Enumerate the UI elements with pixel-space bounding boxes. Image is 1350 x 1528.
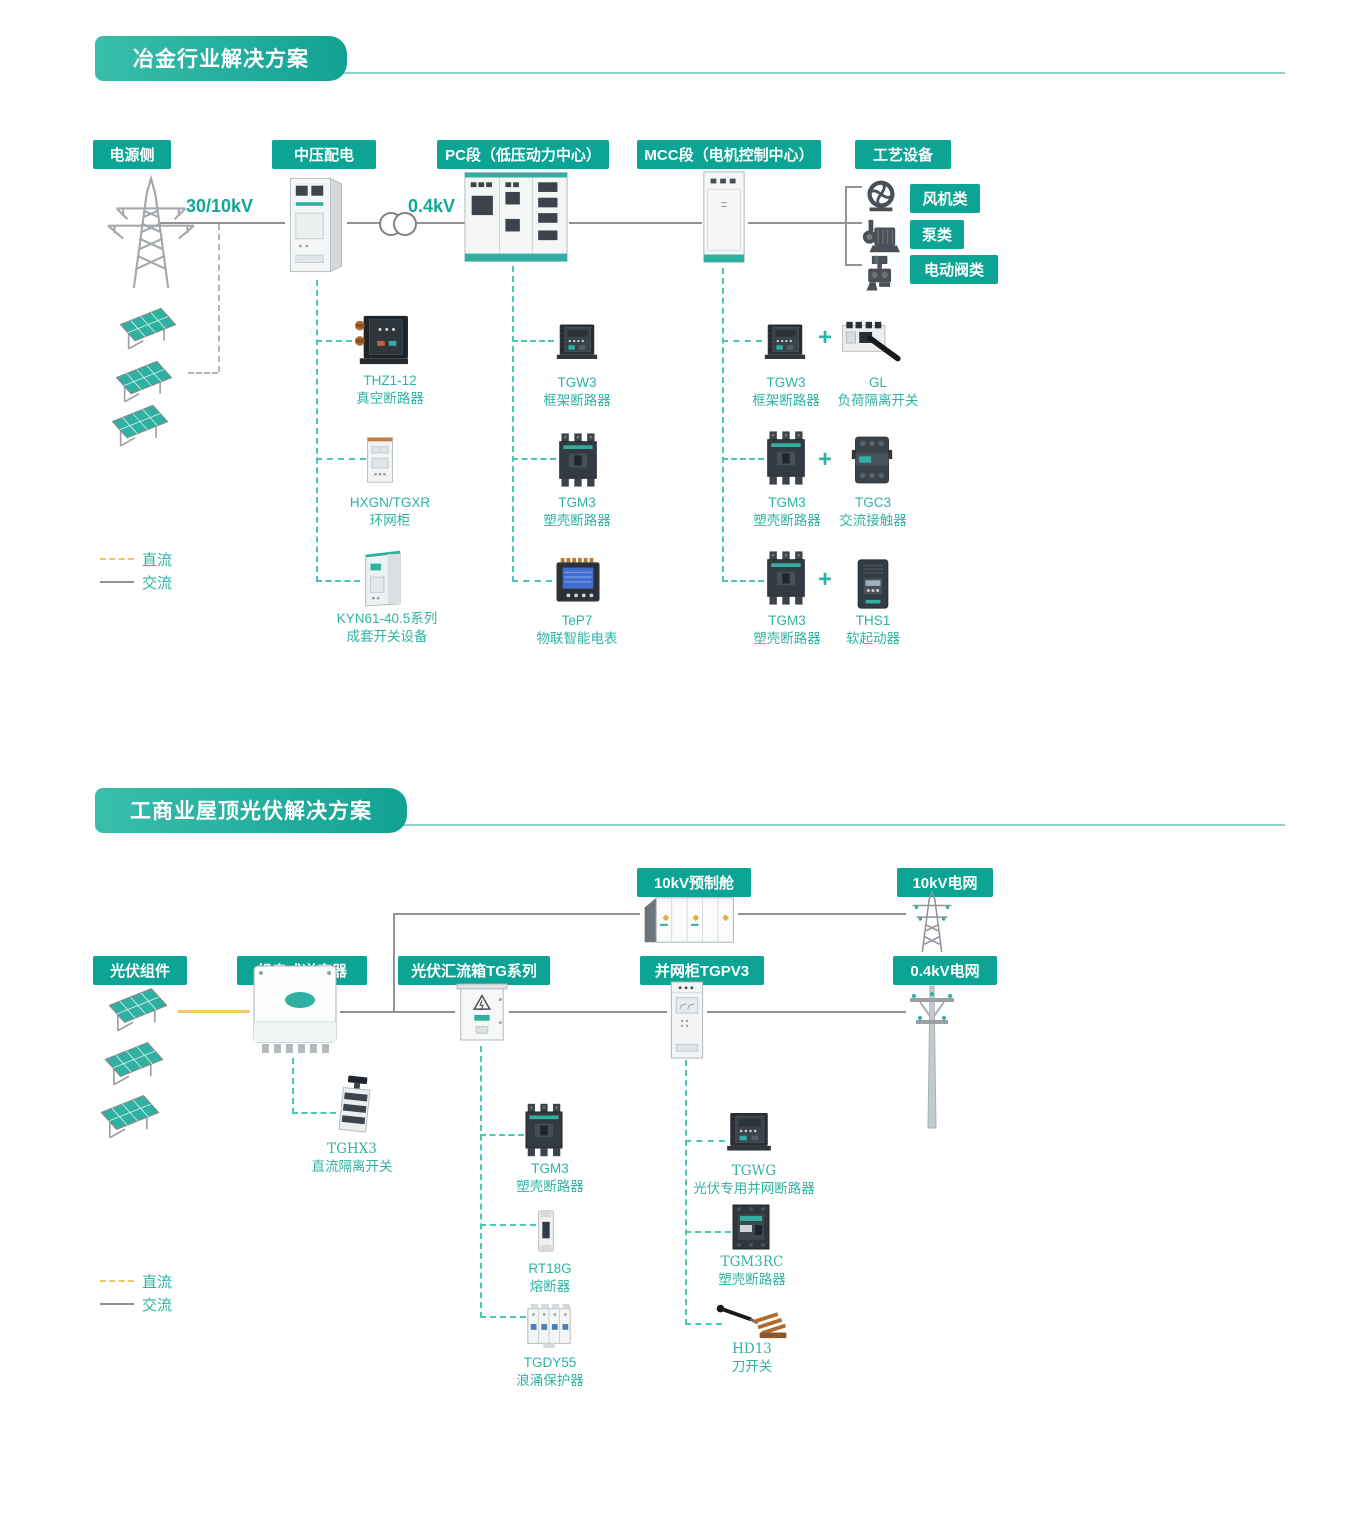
device-name: 塑壳断路器 [507,512,647,530]
device-label-hd13: HD13 刀开关 [677,1340,827,1376]
branch-stub [316,458,366,460]
mv-cabinet-image [283,170,347,280]
branch-stub [685,1140,725,1142]
device-label-gl: GL 负荷隔离开关 [806,374,950,410]
combiner-box-image [455,980,509,1046]
section1-title: 冶金行业解决方案 [95,36,347,81]
header-process-equipment: 工艺设备 [855,140,951,169]
device-label-tgc3: TGC3 交流接触器 [802,494,944,530]
branch-stub [512,580,552,582]
device-name: 浪涌保护器 [475,1372,625,1390]
ac-line [416,222,465,224]
load-tag-valve: 电动阀类 [910,255,998,284]
tgwg-breaker-image [724,1104,774,1158]
ac-line-to-cabin [393,913,640,915]
device-label-thz1-12: THZ1-12 真空断路器 [310,372,470,408]
legend-dc-label: 直流 [142,549,172,570]
legend-dc-label: 直流 [142,1271,172,1292]
tgm3-breaker-image [764,549,808,607]
device-model: TGC3 [802,494,944,512]
plus-sign: + [818,568,832,592]
device-model: HXGN/TGXR [310,494,470,512]
device-label-tgw3: TGW3 框架断路器 [507,374,647,410]
device-label-tghx3: TGHX3 直流隔离开关 [282,1140,422,1176]
load-tag-fan: 风机类 [910,184,980,213]
rt18g-fuse-image [535,1206,557,1256]
inverter-branch-line [292,1058,294,1114]
ac-line-cabin-to-grid [738,913,906,915]
device-model: THS1 [802,612,944,630]
device-name: 熔断器 [475,1278,625,1296]
pump-icon [858,218,902,256]
valve-icon [862,254,900,296]
device-model: TGM3 [507,494,647,512]
device-label-kyn61: KYN61-40.5系列 成套开关设备 [302,610,472,646]
tgw3-breaker-image [554,316,600,366]
device-model: KYN61-40.5系列 [302,610,472,628]
gl-switch-image [840,320,906,366]
device-name: 真空断路器 [310,390,470,408]
device-model: THZ1-12 [310,372,470,390]
device-name: 成套开关设备 [302,628,472,646]
tgm3rc-breaker-image [729,1201,773,1253]
branch-stub [480,1224,536,1226]
ac-line [569,222,702,224]
device-model: TGW3 [507,374,647,392]
device-label-tgm3-pv: TGM3 塑壳断路器 [475,1160,625,1196]
branch-stub [722,580,764,582]
solution-diagram-page: { "plus": "+", "s1": { "title": "冶金行业解决方… [0,0,1350,1528]
legend-ac-label: 交流 [142,572,172,593]
load-stub-valve [845,264,862,266]
ac-line [707,1011,906,1013]
04kv-pole-image [906,982,958,1132]
branch-stub [480,1316,526,1318]
device-name: 物联智能电表 [507,630,647,648]
device-label-tep7: TeP7 物联智能电表 [507,612,647,648]
device-model: RT18G [475,1260,625,1278]
legend-dc-line [100,1280,134,1282]
plus-sign: + [818,448,832,472]
device-label-hxgn: HXGN/TGXR 环网柜 [310,494,470,530]
branch-stub [480,1134,524,1136]
tgm3-breaker-image [556,431,600,489]
string-inverter-image [250,964,340,1060]
header-power-side: 电源侧 [93,140,171,169]
tgm3-breaker-image [764,429,808,487]
load-tag-pump: 泵类 [910,220,964,249]
device-name: 交流接触器 [802,512,944,530]
tgc3-contactor-image [850,431,894,489]
device-label-tgwg: TGWG 光伏专用并网断路器 [672,1162,836,1198]
prefab-cabin-image [640,894,738,948]
device-model: HD13 [677,1340,827,1358]
device-name: 软起动器 [802,630,944,648]
hxgn-ring-main-image [364,432,396,488]
tgpv3-cabinet-image [667,980,707,1060]
device-model: TGWG [672,1162,836,1180]
section2-title: 工商业屋顶光伏解决方案 [95,788,407,833]
legend-ac-line [100,1303,134,1305]
branch-stub [292,1112,336,1114]
load-bracket-line [845,186,847,266]
device-name: 框架断路器 [507,392,647,410]
ths1-softstarter-image [856,558,890,610]
device-label-rt18g: RT18G 熔断器 [475,1260,625,1296]
transformer-symbol [376,209,420,239]
tgw3-breaker-image [762,316,808,366]
mcc-device-branch-line [722,268,724,582]
pc-switchgear-image [463,168,569,266]
ac-riser-line [393,913,395,1011]
solar-panel-image [92,1089,168,1141]
header-10kv-cabin: 10kV预制舱 [637,868,751,897]
ac-line [748,222,845,224]
pv-tie-dashed-horizontal [188,372,218,374]
tep7-meter-image [552,556,604,604]
device-label-ths1: THS1 软起动器 [802,612,944,648]
solar-panel-image [96,1036,172,1088]
legend-ac-line [100,581,134,583]
pc-device-branch-line [512,266,514,582]
device-name: 环网柜 [310,512,470,530]
10kv-tower-image [904,888,960,954]
device-label-tgdy55: TGDY55 浪涌保护器 [475,1354,625,1390]
device-label-tgm3rc: TGM3RC 塑壳断路器 [677,1253,827,1289]
header-mcc-section: MCC段（电机控制中心） [637,140,821,169]
solar-panel-image [112,302,184,352]
branch-stub [512,340,554,342]
header-mv-distribution: 中压配电 [272,140,376,169]
pv-tie-dashed-vertical [218,224,220,372]
branch-stub [722,340,762,342]
device-model: TGM3RC [677,1253,827,1271]
device-name: 直流隔离开关 [282,1158,422,1176]
device-name: 刀开关 [677,1358,827,1376]
tgm3-breaker-image [522,1102,566,1158]
hd13-knife-switch-image [712,1300,792,1342]
solar-panel-image [104,399,176,449]
fan-icon [862,178,900,216]
branch-stub [685,1231,731,1233]
header-pv-modules: 光伏组件 [93,956,187,985]
mcc-cabinet-image [700,168,748,268]
device-label-tgm3: TGM3 塑壳断路器 [507,494,647,530]
device-name: 塑壳断路器 [475,1178,625,1196]
branch-stub [722,458,764,460]
plus-sign: + [818,326,832,350]
tgdy55-spd-image [524,1299,574,1353]
device-model: TGDY55 [475,1354,625,1372]
tghx3-isolator-image [334,1074,376,1136]
device-name: 光伏专用并网断路器 [672,1180,836,1198]
load-stub-fan [845,186,862,188]
ac-line [509,1011,667,1013]
device-model: TGHX3 [282,1140,422,1158]
branch-stub [316,580,360,582]
kyn61-switchgear-image [358,548,404,610]
ac-line [340,1011,455,1013]
mv-device-branch-line [316,280,318,582]
branch-stub [512,458,556,460]
device-model: TeP7 [507,612,647,630]
header-04kv-grid: 0.4kV电网 [893,956,997,985]
device-model: GL [806,374,950,392]
dc-line-pv-to-inverter [178,1010,250,1013]
solar-panel-image [108,355,180,405]
header-pc-section: PC段（低压动力中心） [437,140,609,169]
thz1-12-breaker-image [350,314,412,366]
legend-dc-line [100,558,134,560]
transmission-tower-image [95,172,207,290]
device-name: 负荷隔离开关 [806,392,950,410]
device-name: 塑壳断路器 [677,1271,827,1289]
device-model: TGM3 [475,1160,625,1178]
legend-ac-label: 交流 [142,1294,172,1315]
solar-panel-image [100,982,176,1034]
branch-stub [316,340,352,342]
